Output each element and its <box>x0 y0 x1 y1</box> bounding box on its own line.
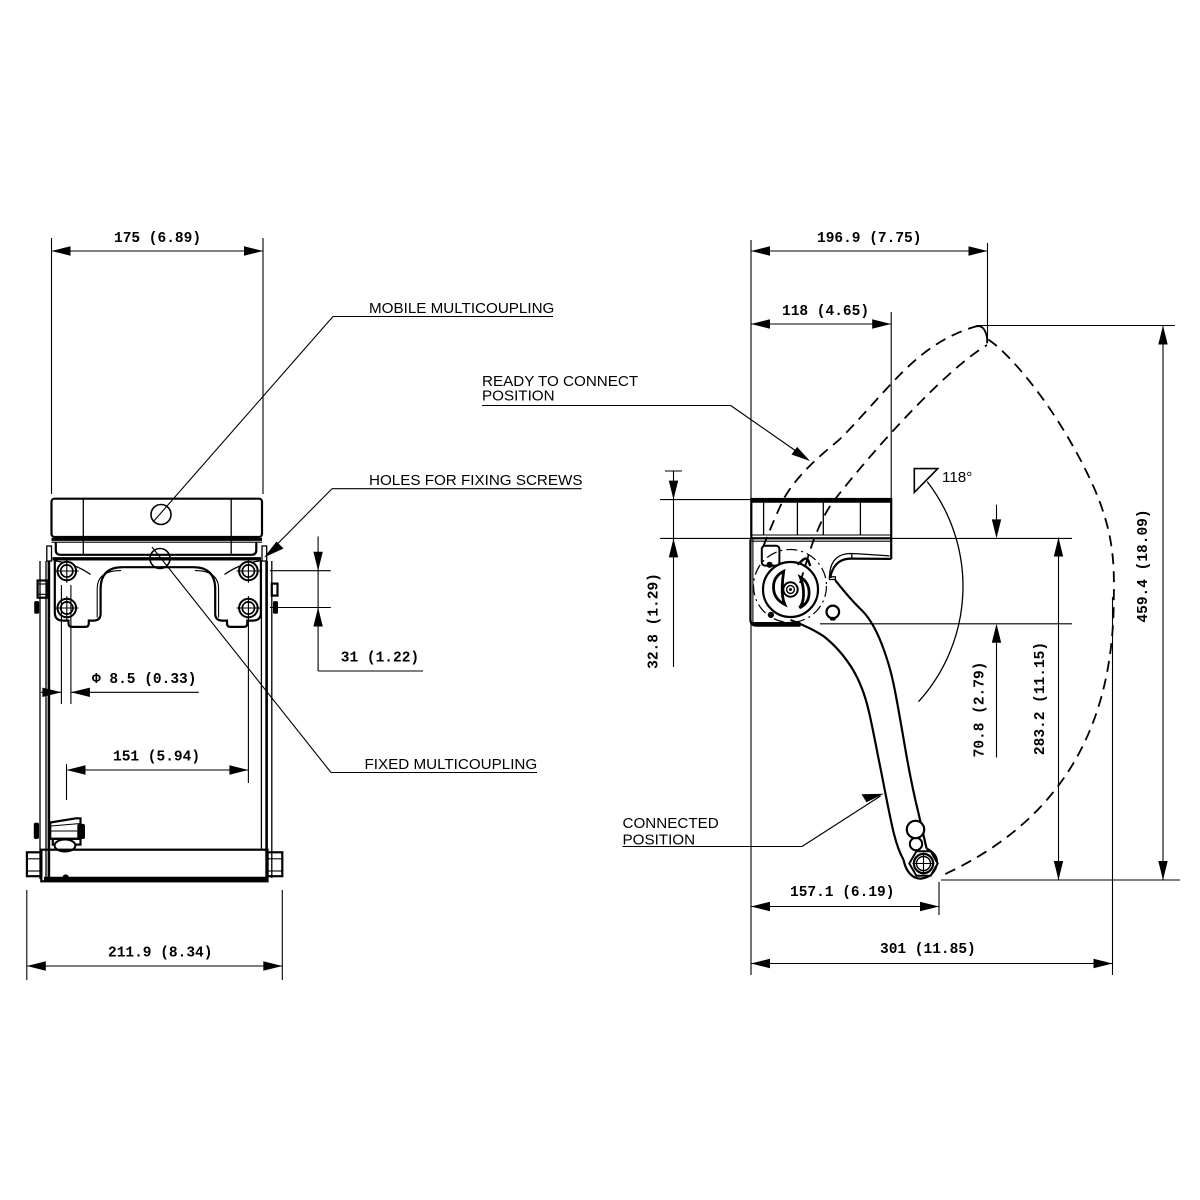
svg-text:FIXED MULTICOUPLING: FIXED MULTICOUPLING <box>365 756 538 773</box>
svg-text:301 (11.85): 301 (11.85) <box>880 942 976 958</box>
svg-text:MOBILE MULTICOUPLING: MOBILE MULTICOUPLING <box>369 300 554 317</box>
svg-text:211.9 (8.34): 211.9 (8.34) <box>108 946 212 962</box>
svg-text:HOLES FOR FIXING SCREWS: HOLES FOR FIXING SCREWS <box>369 472 583 489</box>
svg-text:31 (1.22): 31 (1.22) <box>341 651 419 667</box>
svg-text:118 (4.65): 118 (4.65) <box>782 304 869 320</box>
svg-text:196.9 (7.75): 196.9 (7.75) <box>817 231 921 247</box>
svg-text:CONNECTED: CONNECTED <box>623 815 719 832</box>
svg-text:118°: 118° <box>942 469 972 486</box>
svg-text:Φ 8.5 (0.33): Φ 8.5 (0.33) <box>92 672 196 688</box>
svg-text:283.2 (11.15): 283.2 (11.15) <box>1033 642 1049 755</box>
svg-text:POSITION: POSITION <box>482 388 555 405</box>
svg-text:70.8 (2.79): 70.8 (2.79) <box>973 662 989 758</box>
svg-text:459.4 (18.09): 459.4 (18.09) <box>1136 509 1152 622</box>
svg-text:151 (5.94): 151 (5.94) <box>113 750 200 766</box>
svg-text:175 (6.89): 175 (6.89) <box>114 231 201 247</box>
svg-text:32.8 (1.29): 32.8 (1.29) <box>647 573 663 669</box>
svg-text:157.1 (6.19): 157.1 (6.19) <box>790 885 894 901</box>
